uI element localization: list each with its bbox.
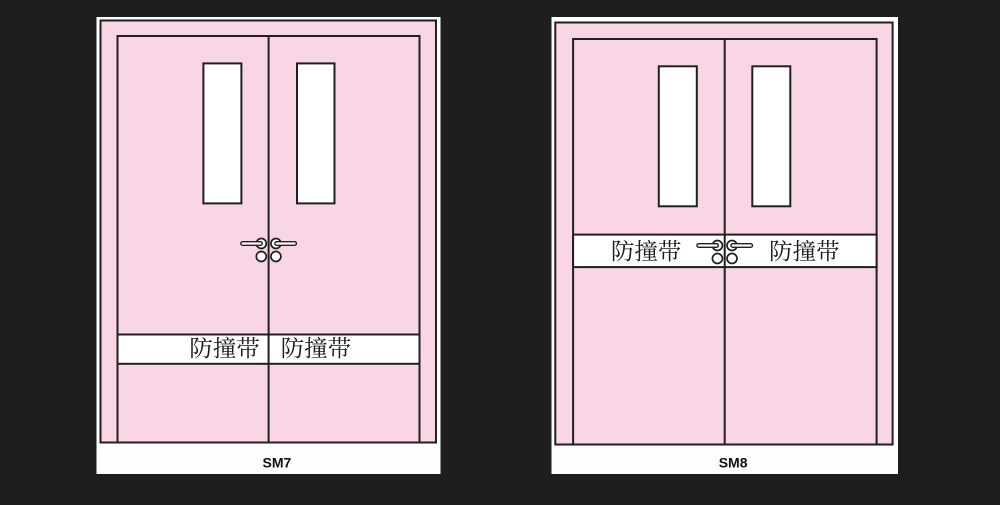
svg-text:SM8: SM8 xyxy=(719,455,748,471)
svg-text:SM7: SM7 xyxy=(263,455,292,471)
